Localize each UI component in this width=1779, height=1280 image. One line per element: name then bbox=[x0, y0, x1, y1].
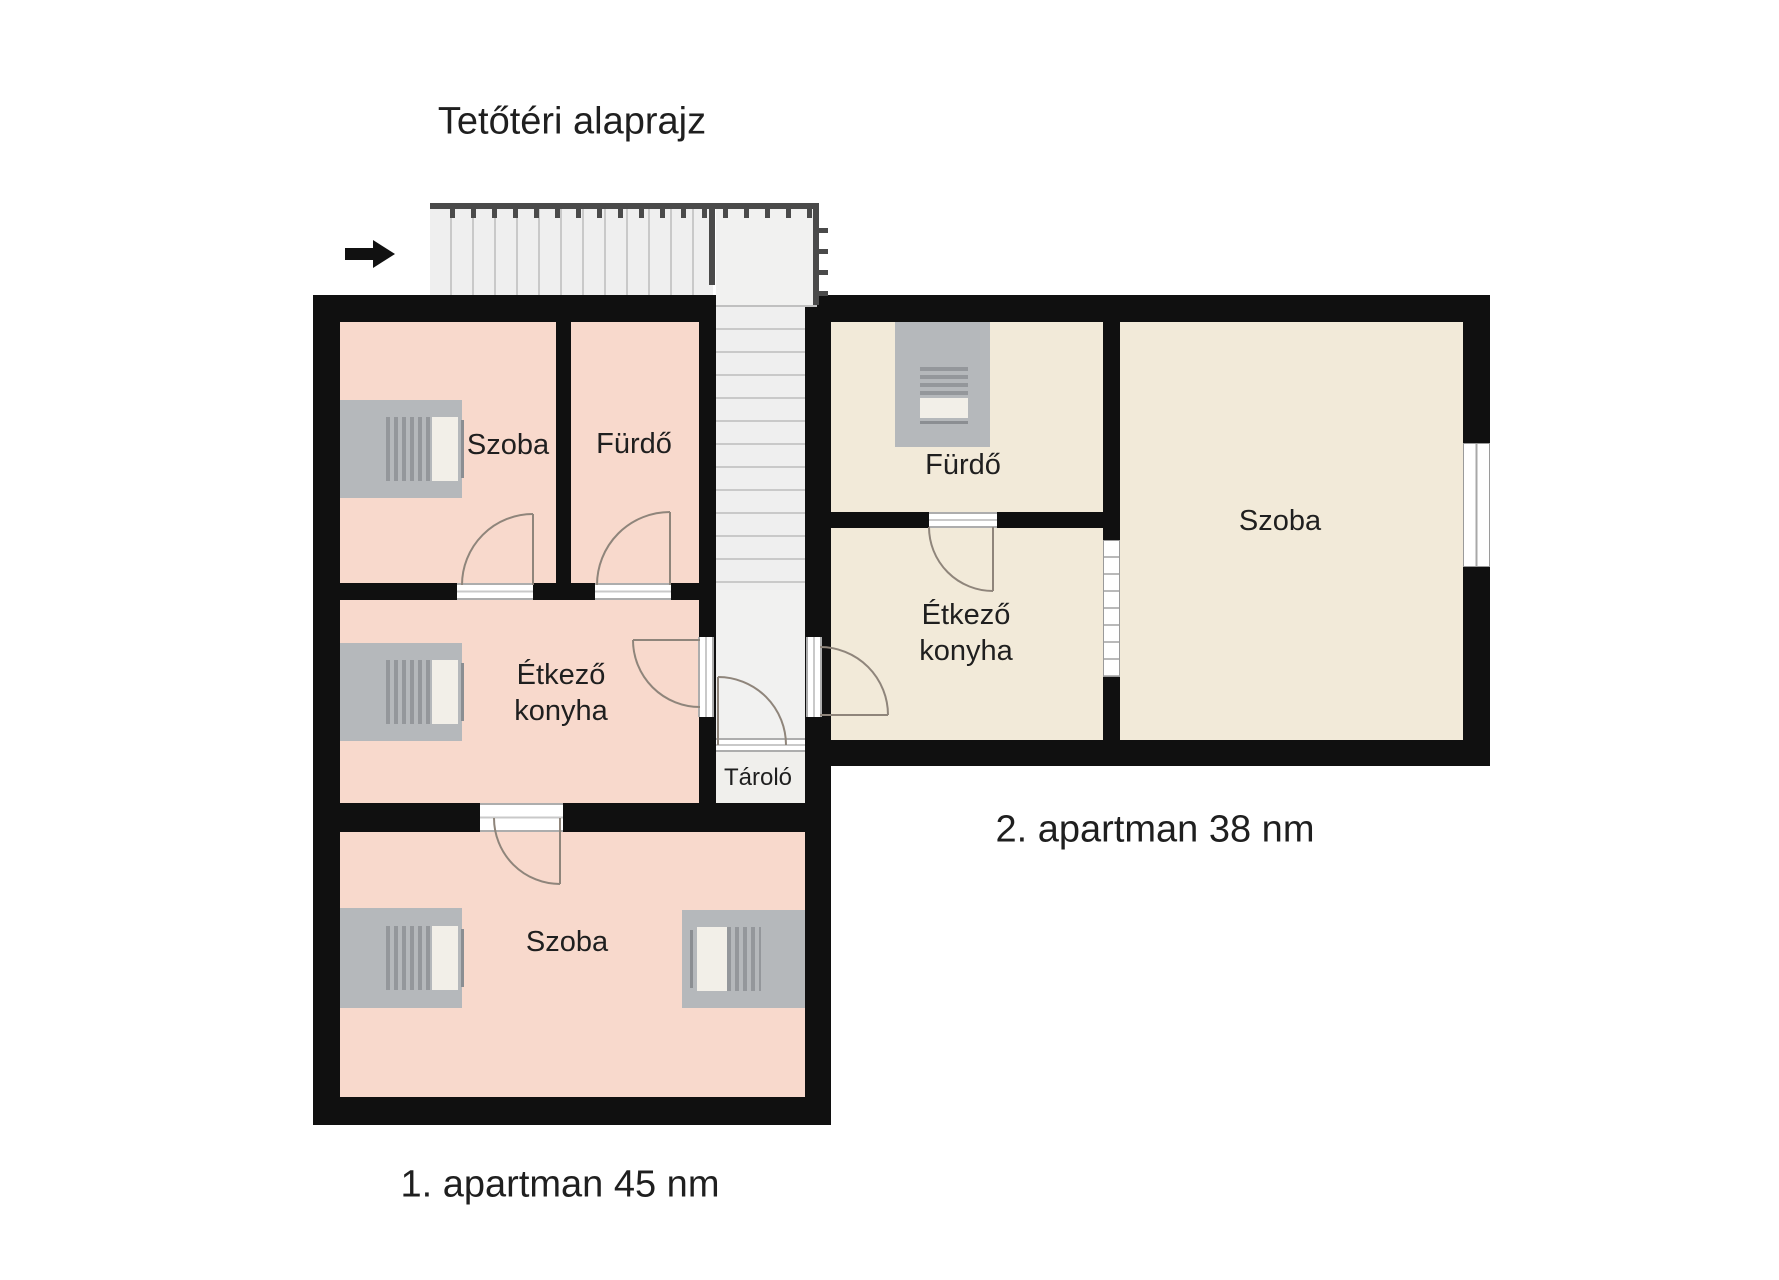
wall-shaft-left bbox=[699, 295, 716, 832]
room-label-apt2-szoba: Szoba bbox=[1239, 503, 1321, 539]
bed-apt1-szoba-bottom-left-mattress bbox=[386, 926, 432, 990]
room-label-apt1-furdo: Fürdő bbox=[596, 426, 672, 462]
bed-apt1-szoba-bottom-right-pillow bbox=[697, 927, 727, 991]
door-opening-storage bbox=[716, 738, 805, 752]
staircase-lower-landing bbox=[716, 590, 805, 738]
entry-arrow-shaft bbox=[345, 248, 375, 260]
washer-apt2-furdo-top bbox=[920, 367, 968, 398]
room-label-apt2-konyha-line2: konyha bbox=[919, 633, 1013, 669]
wall-apt1-szoba-furdo bbox=[556, 322, 571, 600]
door-opening-landing-apt1 bbox=[698, 637, 714, 717]
staircase-upper-landing bbox=[716, 208, 817, 307]
wall-outer-right-upper bbox=[1463, 322, 1490, 443]
apartment-1-label: 1. apartman 45 nm bbox=[401, 1161, 720, 1209]
wall-apt1-konyha-szoba bbox=[313, 803, 831, 832]
wall-outer-bottom bbox=[313, 1097, 831, 1125]
bed-apt1-szoba-bottom-right-edge bbox=[690, 930, 693, 988]
bed-apt1-szoba-top-mattress bbox=[386, 417, 432, 481]
wall-outer-top-right bbox=[817, 295, 1490, 322]
window-apt2-partition bbox=[1103, 540, 1120, 677]
appliance-apt1-konyha-front bbox=[386, 660, 432, 724]
floor-plan: Tetőtéri alaprajz bbox=[0, 0, 1779, 1280]
stair-handrail-inner bbox=[709, 209, 715, 285]
room-label-apt2-furdo: Fürdő bbox=[925, 447, 1001, 483]
room-label-apt1-szoba-bottom: Szoba bbox=[526, 924, 608, 960]
room-label-storage: Tároló bbox=[724, 763, 792, 793]
bed-apt1-szoba-top-pillow bbox=[432, 417, 458, 481]
door-opening-apt1-furdo bbox=[595, 583, 671, 600]
staircase-upper-flight bbox=[430, 208, 713, 295]
room-label-apt1-konyha-line2: konyha bbox=[514, 693, 608, 729]
wall-outer-right-lower bbox=[1463, 567, 1490, 766]
wall-apt2-divider bbox=[1103, 322, 1120, 740]
door-opening-apt1-szoba-bottom bbox=[480, 803, 563, 832]
bed-apt1-szoba-top-edge bbox=[461, 420, 464, 478]
entry-arrow-head bbox=[373, 240, 395, 268]
washer-apt2-furdo-band bbox=[920, 398, 968, 418]
door-opening-landing-apt2 bbox=[806, 637, 822, 717]
door-opening-apt2-furdo bbox=[929, 512, 997, 528]
washer-apt2-furdo-line bbox=[920, 421, 968, 424]
bed-apt1-szoba-bottom-left-pillow bbox=[432, 926, 458, 990]
bed-apt1-szoba-bottom-right-mattress bbox=[727, 927, 761, 991]
door-opening-apt1-szoba-top bbox=[457, 583, 533, 600]
wall-apt2-bottom bbox=[805, 740, 1490, 766]
appliance-apt1-konyha-top bbox=[432, 660, 458, 724]
appliance-apt1-konyha-edge bbox=[461, 663, 464, 721]
room-label-apt1-szoba-top: Szoba bbox=[467, 427, 549, 463]
room-label-apt2-konyha: Étkező konyha bbox=[919, 597, 1013, 670]
room-label-apt2-konyha-line1: Étkező bbox=[919, 597, 1013, 633]
stair-handrail-right-ticks bbox=[819, 212, 828, 302]
apartment-2-label: 2. apartman 38 nm bbox=[996, 806, 1315, 854]
staircase-shaft-flight bbox=[716, 307, 805, 590]
stair-handrail-top-ticks bbox=[434, 209, 815, 218]
room-label-apt1-konyha: Étkező konyha bbox=[514, 657, 608, 730]
wall-outer-left bbox=[313, 295, 340, 1125]
room-label-apt1-konyha-line1: Étkező bbox=[514, 657, 608, 693]
window-outer-right bbox=[1463, 443, 1490, 567]
wall-outer-top-left bbox=[313, 295, 716, 322]
bed-apt1-szoba-bottom-left-edge bbox=[461, 929, 464, 987]
plan-title: Tetőtéri alaprajz bbox=[438, 98, 706, 146]
